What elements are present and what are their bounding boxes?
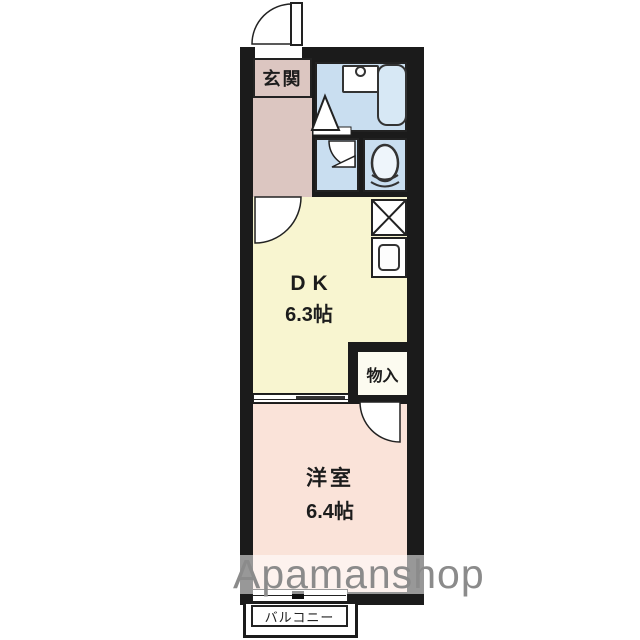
bathtub-icon [377, 64, 407, 126]
balcony-label: バルコニー [251, 605, 348, 627]
western-room-size: 6.4帖 [253, 495, 407, 524]
toilet-room [363, 138, 407, 192]
washroom [315, 138, 359, 192]
western-room-name: 洋室 [253, 462, 407, 492]
closet-label: 物入 [358, 352, 407, 395]
entrance-label: 玄関 [253, 58, 312, 98]
wash-basin-icon [342, 65, 379, 93]
entry-door-leaf-icon [291, 3, 302, 45]
watermark: Apamanshop [228, 555, 566, 594]
watermark-text: Apamanshop [228, 555, 485, 594]
entrance-hall [253, 96, 312, 197]
entry-door-arc-icon [252, 4, 292, 44]
sliding-door-panel [296, 396, 345, 399]
sliding-door-icon [253, 394, 349, 403]
kitchen-sink-bowl [378, 244, 400, 271]
dk-room-size: 6.3帖 [253, 298, 365, 327]
sliding-door-track [254, 399, 348, 401]
dk-room-name: DK [253, 272, 365, 296]
western-room-label: 洋室 6.4帖 [253, 462, 407, 524]
washing-machine-space-icon [371, 199, 407, 236]
dk-label: DK 6.3帖 [253, 272, 365, 327]
floor-plan: 玄関 DK 6.3帖 物入 洋室 6.4帖 バルコニー [0, 0, 640, 640]
